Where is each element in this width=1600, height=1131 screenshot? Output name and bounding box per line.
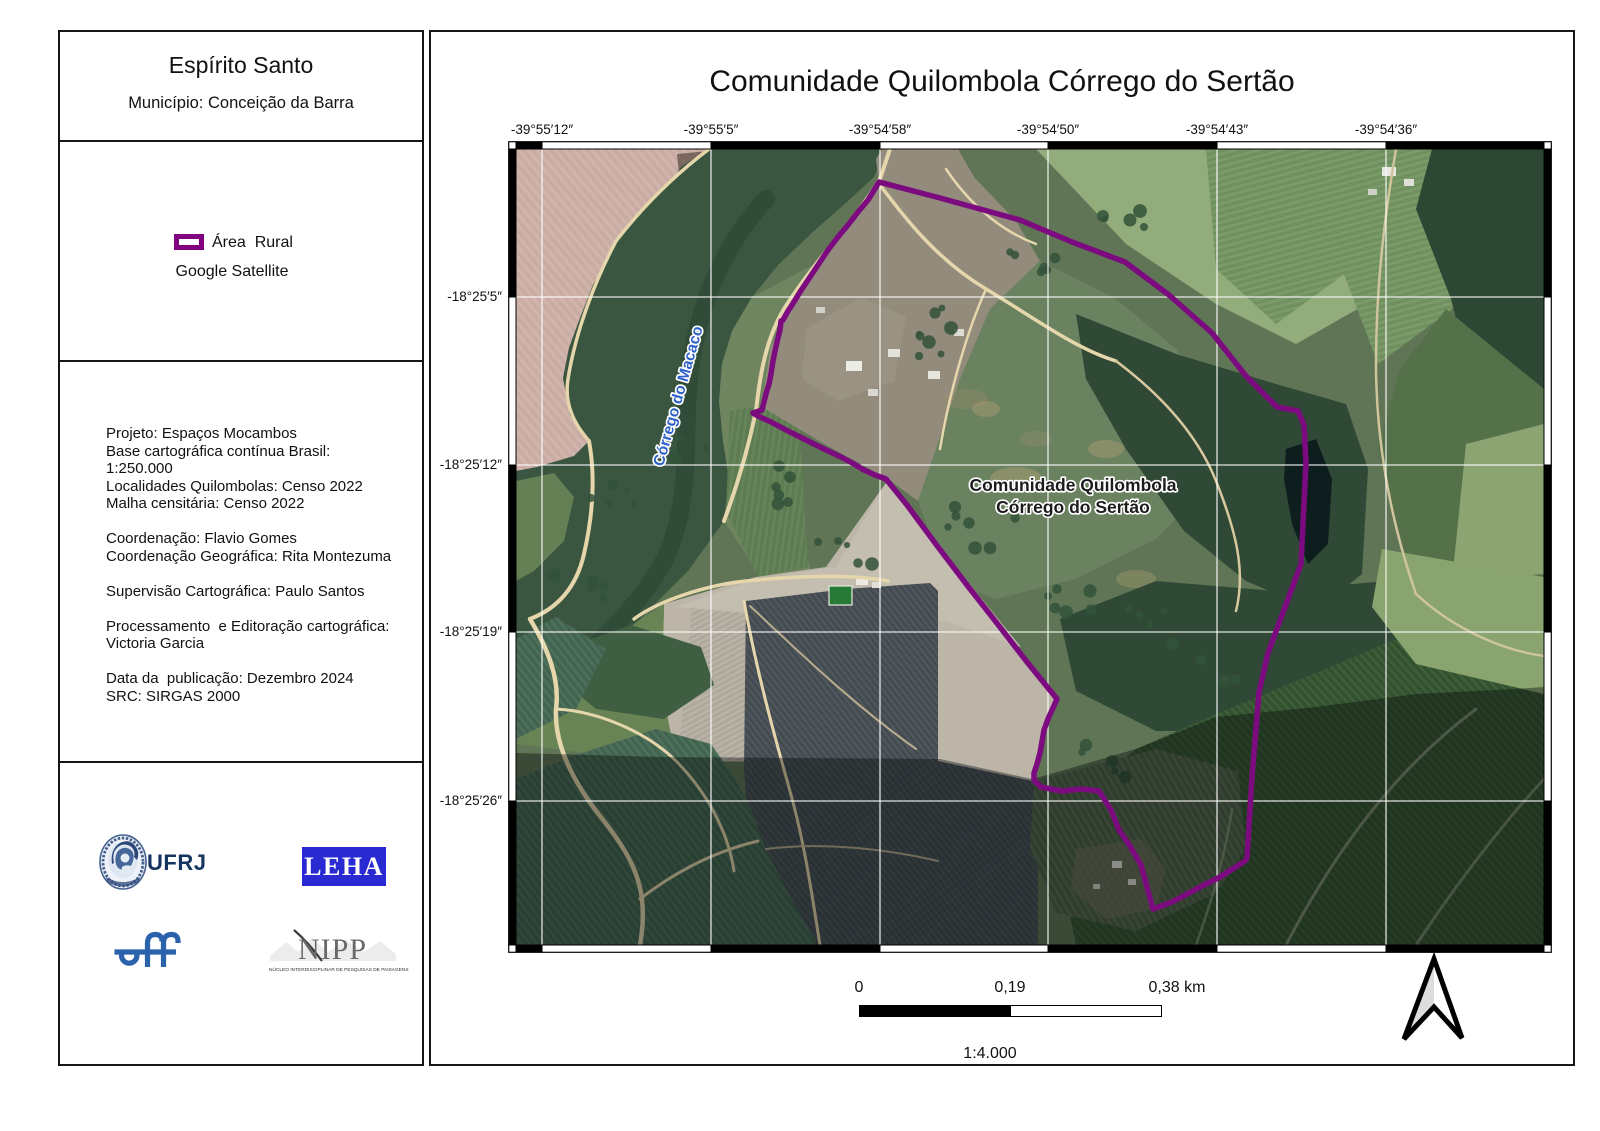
svg-text:Córrego do Sertão: Córrego do Sertão bbox=[996, 497, 1150, 517]
svg-text:Comunidade Quilombola: Comunidade Quilombola bbox=[969, 475, 1176, 495]
svg-text:UFRJ: UFRJ bbox=[147, 850, 206, 875]
svg-text:NÚCLEO INTERDISCIPLINAR DE PES: NÚCLEO INTERDISCIPLINAR DE PESQUISAS DE … bbox=[269, 966, 409, 973]
svg-text:NIPP: NIPP bbox=[298, 933, 367, 966]
